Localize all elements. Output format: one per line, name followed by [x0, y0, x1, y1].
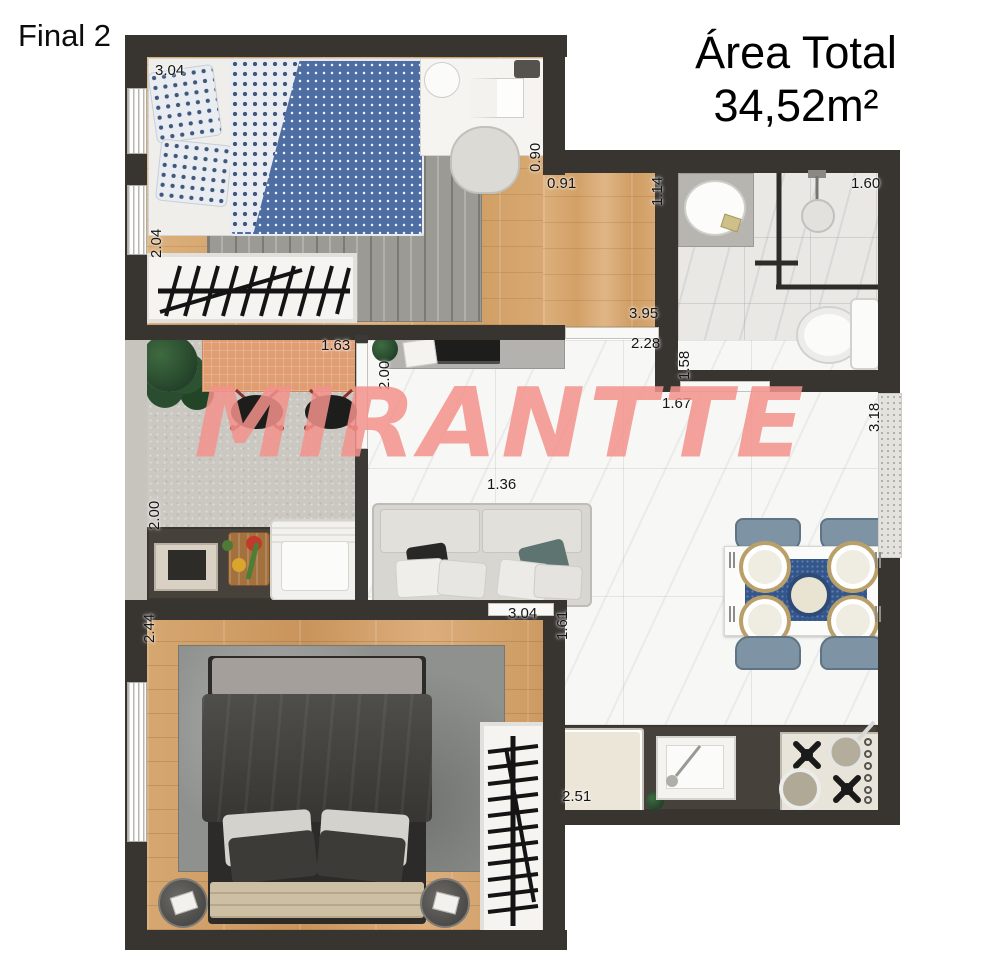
sofa-pillow — [533, 564, 583, 600]
measurement: 2.44 — [141, 614, 158, 643]
desk-chair — [450, 126, 520, 194]
plate — [739, 541, 791, 593]
area-total-block: Área Total 34,52m² — [640, 28, 952, 134]
foot-blanket — [210, 882, 424, 918]
measurement: 2.04 — [148, 229, 165, 258]
measurement: 1.14 — [649, 177, 666, 206]
measurement: 2.51 — [562, 788, 591, 805]
dining-chair — [820, 636, 886, 670]
floor-plan-canvas: Final 2 Área Total 34,52m² — [0, 0, 1000, 980]
wall-bathroom-right — [878, 150, 900, 395]
window-bedroom2 — [127, 682, 147, 842]
measurement: 1.63 — [321, 337, 350, 354]
center-plate — [787, 573, 831, 617]
desk-lamp — [514, 60, 540, 78]
pillow — [155, 138, 233, 207]
dining-chair — [735, 636, 801, 670]
headboard — [212, 658, 422, 696]
wardrobe-bedroom1 — [145, 253, 357, 323]
sofa-pillow — [437, 559, 488, 599]
measurement: 1.60 — [851, 175, 880, 192]
measurement: 0.90 — [527, 143, 544, 172]
measurement: 2.28 — [631, 335, 660, 352]
measurement: 2.00 — [146, 501, 163, 530]
nightstand-books — [170, 891, 198, 916]
measurement: 1.61 — [554, 611, 571, 640]
wall-bedroom1-top — [125, 35, 567, 57]
measurement: 3.04 — [508, 605, 537, 622]
kitchen-sink — [656, 736, 736, 800]
dining-table — [724, 546, 888, 636]
microwave — [154, 543, 218, 591]
plate — [827, 541, 879, 593]
sink-basin — [281, 541, 349, 591]
wardrobe-bedroom2 — [480, 722, 546, 936]
measurement: 3.04 — [155, 62, 184, 79]
nightstand — [420, 878, 470, 928]
area-total-value: 34,52m² — [640, 78, 952, 134]
open-book — [470, 78, 524, 118]
bed-pillow-dark — [316, 830, 406, 885]
window-bedroom1-lower — [127, 185, 147, 255]
sofa — [372, 503, 592, 607]
wall-balcony-left — [125, 340, 147, 600]
wall-bathroom-top — [543, 150, 900, 173]
console-books — [402, 338, 437, 368]
sink-basin — [666, 745, 724, 789]
laundry-sink — [270, 519, 362, 601]
bed-pillow-dark — [228, 830, 318, 885]
area-total-title: Área Total — [640, 28, 952, 78]
duvet-dark — [202, 694, 432, 822]
wall-right-lower — [878, 556, 900, 825]
vegetable-pepper-yellow — [232, 558, 246, 572]
measurement: 3.18 — [866, 403, 883, 432]
vegetable-green — [222, 540, 233, 551]
watermark: MIRANTTE — [148, 376, 854, 472]
measurement: 3.95 — [629, 305, 658, 322]
microwave-door — [168, 550, 206, 580]
nightstand — [158, 878, 208, 928]
toilet-tank — [850, 298, 880, 370]
floor-hall — [543, 173, 655, 327]
desk-tray — [424, 62, 460, 98]
wall-kitchen-bottom — [543, 810, 900, 825]
nightstand-books — [432, 891, 460, 914]
wall-bedroom2-bottom — [125, 930, 567, 950]
window-bedroom1-upper — [127, 88, 147, 154]
double-bed — [208, 656, 426, 924]
wall-bedroom2-right — [543, 600, 565, 950]
cooktop — [780, 732, 880, 812]
measurement: 0.91 — [547, 175, 576, 192]
plan-label: Final 2 — [18, 18, 111, 54]
